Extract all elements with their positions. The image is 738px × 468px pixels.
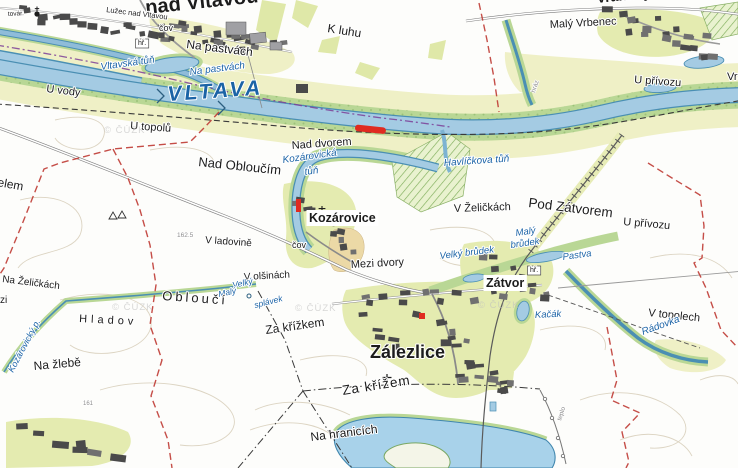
label-wm-2: © ČÚZK xyxy=(112,302,154,313)
building xyxy=(110,453,126,462)
building xyxy=(437,298,444,305)
church-icon xyxy=(34,11,39,16)
building xyxy=(452,290,462,296)
label-k-luhu: K luhu xyxy=(327,21,363,40)
building xyxy=(213,30,221,38)
label-elev-161: 161 xyxy=(83,401,94,407)
building xyxy=(76,440,86,448)
building xyxy=(350,249,356,254)
building xyxy=(23,7,30,13)
building xyxy=(33,430,44,436)
building xyxy=(16,423,28,430)
label-zalezlice: Zálezlice xyxy=(370,342,445,362)
label-cov-north: čov xyxy=(159,23,174,33)
building xyxy=(488,376,499,384)
building xyxy=(181,26,187,32)
building xyxy=(358,312,367,317)
label-splavek: splávek xyxy=(253,293,284,310)
label-oblouci: Obloučí xyxy=(162,288,229,308)
label-na-zelickach: Na Želičkách xyxy=(2,272,61,292)
label-za-krizkem: Za křížkem xyxy=(264,315,325,337)
label-elem-partial: elem xyxy=(0,175,25,193)
building xyxy=(499,293,508,300)
building xyxy=(602,6,613,12)
building xyxy=(110,30,120,35)
building xyxy=(399,300,407,306)
building xyxy=(458,376,468,383)
building xyxy=(87,23,97,30)
building xyxy=(69,18,77,25)
label-nad-obloucim: Nad Obloučím xyxy=(198,154,282,178)
building xyxy=(529,288,536,295)
building xyxy=(194,25,203,33)
building xyxy=(625,28,632,35)
label-mezi-dvory: Mezi dvory xyxy=(351,256,405,271)
label-hr-luzec: hř. xyxy=(138,40,146,47)
label-teplo: teplo xyxy=(556,406,567,422)
label-cov-kozarovice: čov xyxy=(292,240,307,250)
label-v-ladovine: V ladovině xyxy=(205,235,253,249)
building xyxy=(672,40,681,47)
label-tovar: továr. xyxy=(8,10,24,18)
label-zatvor: Zátvor xyxy=(486,276,524,290)
building xyxy=(100,26,109,34)
pylon-icon xyxy=(118,211,126,218)
building xyxy=(400,290,410,295)
label-wm-4: © ČÚZK xyxy=(478,300,520,311)
building xyxy=(378,293,387,300)
label-kozarovicka-tun-2: tůň xyxy=(304,164,320,178)
building xyxy=(449,329,456,336)
label-hr-zatvor: hř. xyxy=(530,267,538,274)
label-kacak: Kačák xyxy=(535,309,563,321)
label-u-privozu-east: U přívozu xyxy=(623,216,671,232)
building xyxy=(340,243,348,250)
building xyxy=(77,21,86,28)
building xyxy=(528,283,537,288)
red-building-zalezlice xyxy=(419,313,425,319)
building xyxy=(673,26,680,32)
building xyxy=(159,32,165,38)
label-zi-partial: zi xyxy=(0,295,7,306)
building xyxy=(491,266,499,272)
building xyxy=(330,231,337,237)
map-canvas[interactable]: nad VltavouLužec nad Vltavoutovár.čovNa … xyxy=(0,0,738,468)
label-elev-162: 162.5 xyxy=(177,232,194,239)
building xyxy=(422,288,429,295)
label-vranany-partial: Vraňany xyxy=(596,0,652,6)
building xyxy=(451,343,461,347)
building xyxy=(702,33,711,39)
label-wm-1: © ČÚZK xyxy=(104,125,146,136)
label-wm-3: © ČÚZK xyxy=(295,303,337,314)
building xyxy=(126,24,136,30)
building xyxy=(507,380,514,386)
building xyxy=(540,294,550,301)
label-na-zlebe: Na žlebě xyxy=(33,355,82,373)
building xyxy=(339,237,344,243)
building xyxy=(655,16,661,21)
building xyxy=(52,441,69,449)
building xyxy=(690,45,698,51)
building xyxy=(375,334,386,340)
pylon-icon xyxy=(109,212,117,219)
topographic-map[interactable]: nad VltavouLužec nad Vltavoutovár.čovNa … xyxy=(0,0,738,468)
building xyxy=(707,53,718,60)
label-v-zelickach: V Želičkách xyxy=(454,200,511,215)
building xyxy=(37,19,45,26)
label-hladov: Hladov xyxy=(79,313,138,328)
label-za-krizem: Za křížem xyxy=(341,372,412,398)
label-kozarovice: Kozárovice xyxy=(309,211,376,225)
building xyxy=(139,31,145,37)
label-vra-partial: Vra xyxy=(727,71,738,83)
weir-splavek-icon xyxy=(247,294,251,298)
red-building-kozarovice xyxy=(296,199,301,212)
building xyxy=(641,32,648,37)
building xyxy=(366,299,373,306)
building xyxy=(430,289,439,294)
building xyxy=(619,11,628,18)
